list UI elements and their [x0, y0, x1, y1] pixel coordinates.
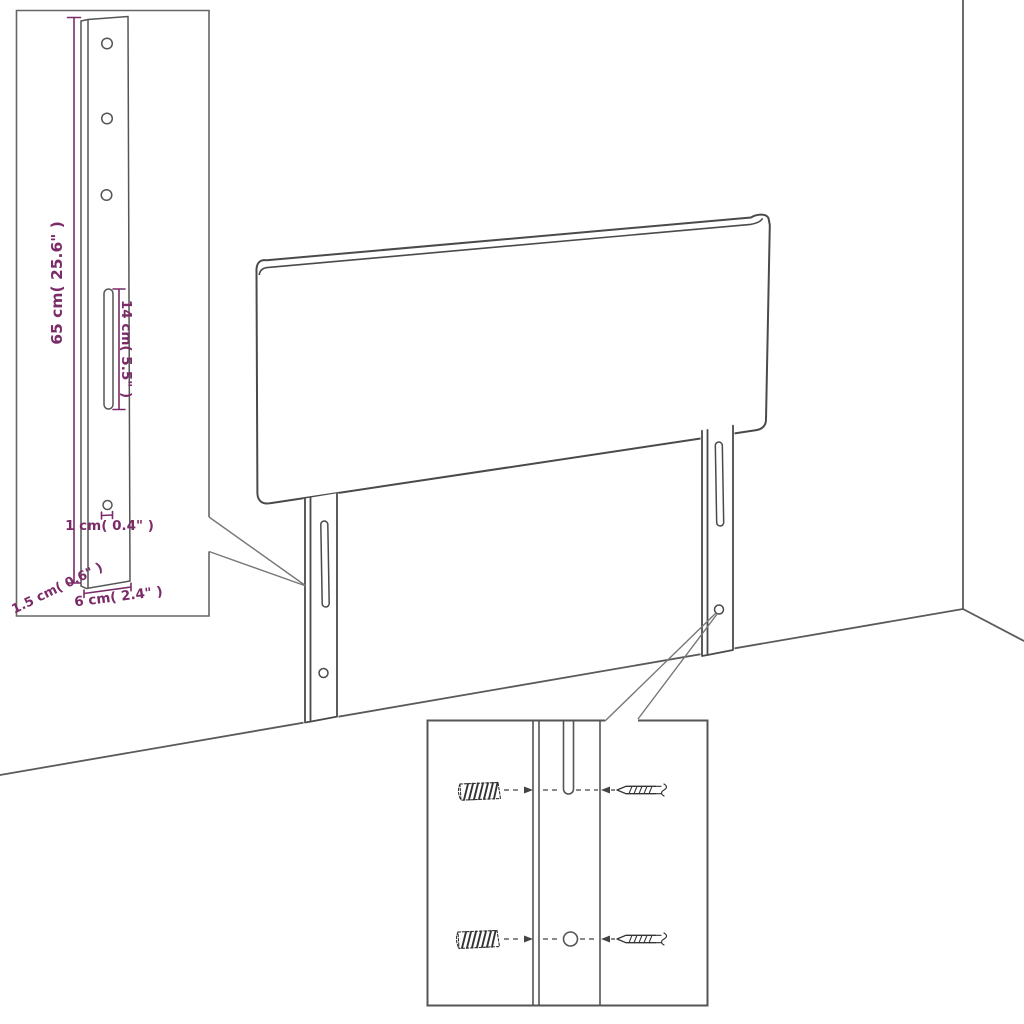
screw-lower-break-symbol — [657, 933, 667, 945]
headboard-panel — [256, 215, 769, 504]
detail-inset-fasteners-box — [428, 721, 708, 1006]
headboard-diagram: 65 cm( 25.6" ) 14 cm( 5.5" ) 1 cm( 0.4" … — [0, 0, 1024, 1024]
screw-lower — [617, 933, 667, 945]
screw-upper-break-symbol — [657, 784, 667, 796]
inset-fastener-leg — [533, 722, 600, 1005]
callout-wedge-left — [209, 517, 306, 586]
dim-label-leg-height: 65 cm( 25.6" ) — [48, 221, 66, 345]
screw-upper — [617, 784, 667, 796]
arrow-lower-left — [524, 936, 533, 943]
detail-inset-fasteners — [428, 613, 718, 1006]
floor-line-left — [0, 609, 963, 775]
right-leg-slot — [715, 442, 723, 526]
right-leg-hole — [715, 605, 724, 614]
screw-upper-threads — [629, 786, 652, 793]
dim-line-leg-height — [68, 18, 81, 584]
dim-label-side-thickness: 1.5 cm( 0.6" ) — [9, 560, 105, 617]
wall-plug-upper — [458, 783, 500, 801]
wall-plug-upper-ribs — [464, 783, 498, 800]
inset-leg-hole-top — [102, 38, 113, 49]
fastener-leg-hole — [564, 932, 578, 946]
arrow-upper-right — [601, 787, 610, 794]
fastener-leg-edges — [533, 722, 600, 1005]
wall-plug-lower-ribs — [462, 931, 496, 948]
inset-leg-small-hole — [103, 501, 112, 510]
fastener-arrows — [524, 787, 610, 943]
dim-label-slot-length: 14 cm( 5.5" ) — [118, 300, 134, 398]
floor-line-right — [963, 609, 1024, 641]
arrow-upper-left — [524, 787, 533, 794]
left-leg-hole — [319, 669, 328, 678]
inset-leg-hole-mid — [102, 113, 113, 124]
dimension-labels: 65 cm( 25.6" ) 14 cm( 5.5" ) 1 cm( 0.4" … — [9, 221, 163, 617]
headboard — [256, 215, 769, 724]
inset-leg-hole-low — [101, 190, 112, 201]
left-leg-slot — [321, 521, 329, 607]
headboard-left-leg — [304, 493, 339, 724]
inset-leg-slot — [104, 289, 113, 409]
screw-lower-threads — [629, 935, 652, 942]
diagram-canvas: 65 cm( 25.6" ) 14 cm( 5.5" ) 1 cm( 0.4" … — [0, 0, 1024, 1024]
wall-plug-lower — [456, 931, 499, 949]
fastener-leg-slot — [564, 722, 574, 795]
arrow-lower-right — [601, 936, 610, 943]
dim-label-hole-diameter: 1 cm( 0.4" ) — [65, 518, 154, 534]
